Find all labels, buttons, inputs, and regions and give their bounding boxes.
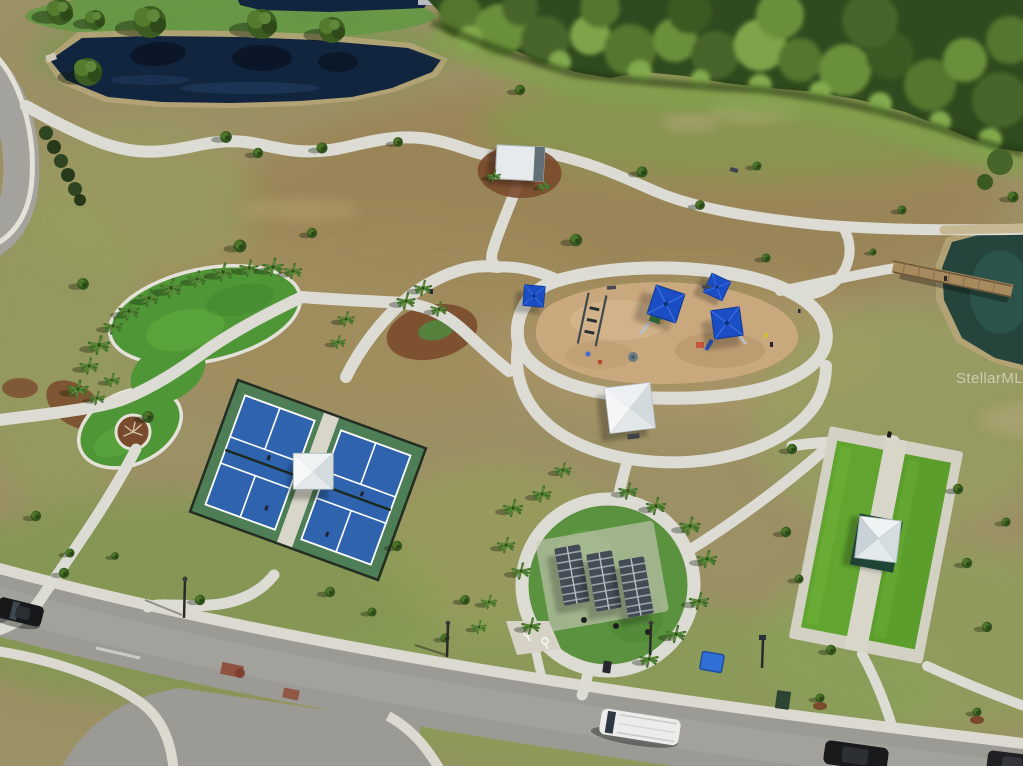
person [944, 276, 947, 281]
person [430, 289, 433, 294]
portable-toilet [700, 651, 725, 673]
grill [613, 623, 619, 629]
person [798, 309, 801, 313]
grill [581, 617, 587, 623]
spring-rider [598, 360, 603, 365]
aerial-scene [0, 0, 1023, 766]
spring-rider [586, 352, 591, 357]
aerial-photo-community-park: StellarMLS [0, 0, 1023, 766]
court-shade-structure [288, 453, 333, 499]
person [770, 342, 773, 347]
utility-box [775, 690, 791, 710]
trash-can [602, 661, 612, 674]
mulch-bed [2, 378, 38, 398]
